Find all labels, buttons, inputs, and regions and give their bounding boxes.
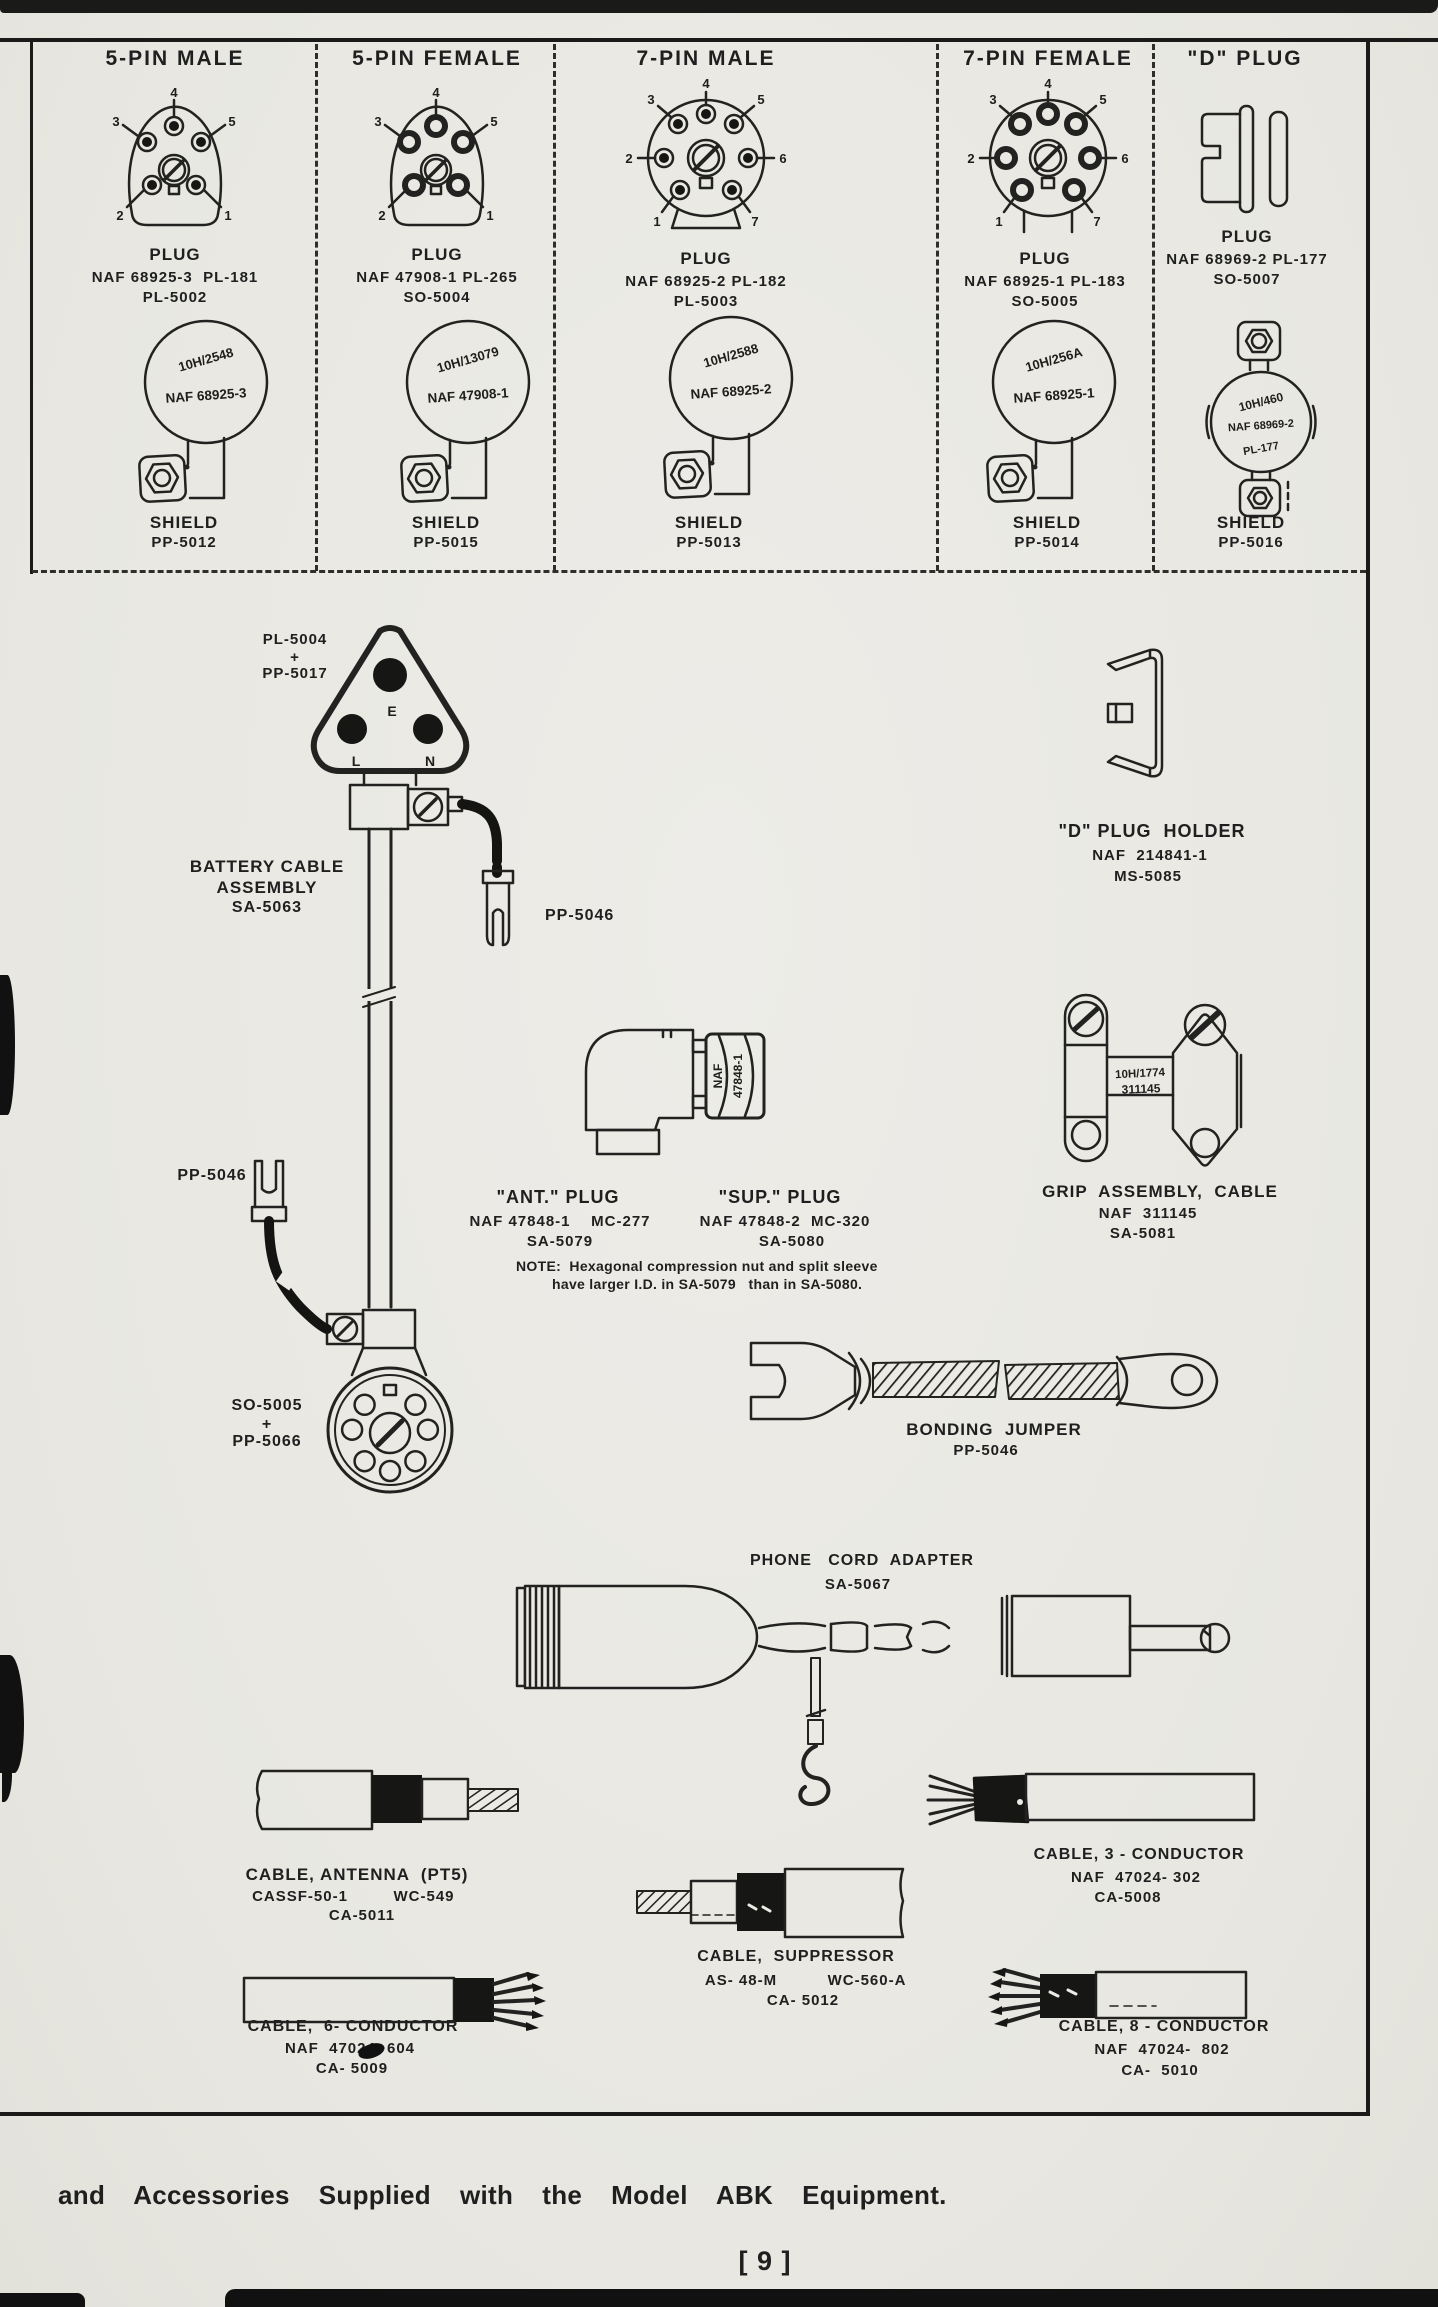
pin-number: 5 bbox=[490, 114, 497, 129]
pin-number: 1 bbox=[653, 214, 660, 229]
col-header-7pin-male: 7-PIN MALE bbox=[636, 48, 775, 70]
pin-number: 2 bbox=[378, 208, 385, 223]
pin-number: 4 bbox=[702, 76, 710, 91]
pin-number: 4 bbox=[1044, 76, 1052, 91]
bonding-jumper-drawing bbox=[745, 1335, 1225, 1430]
five-pin-male-connector-drawing: 4 3 5 2 1 bbox=[92, 80, 257, 240]
shield-stamp-1: 10H/460 bbox=[1237, 390, 1285, 415]
shield-stamp-2: NAF 68925-1 bbox=[1013, 385, 1095, 406]
shield-part: PP-5015 bbox=[413, 535, 478, 551]
shield-label: SHIELD bbox=[1013, 514, 1081, 532]
grip-assembly-drawing: 10H/1774 311145 bbox=[1055, 985, 1265, 1170]
plug-label: PLUG bbox=[1019, 250, 1070, 268]
battery-socket-plus: + bbox=[262, 1417, 272, 1434]
cable-suppressor-part-b: WC-560-A bbox=[828, 1973, 907, 1989]
pin-number: 7 bbox=[751, 214, 758, 229]
shield-stamp-2: NAF 68925-2 bbox=[690, 381, 772, 402]
sup-plug-title: "SUP." PLUG bbox=[719, 1188, 842, 1207]
figure-border-top bbox=[0, 38, 1438, 42]
battery-assembly-name-1: BATTERY CABLE bbox=[190, 858, 344, 876]
battery-assembly-part: SA-5063 bbox=[232, 900, 302, 917]
cable-6-part-2: CA- 5009 bbox=[316, 2061, 388, 2077]
shield-label: SHIELD bbox=[150, 514, 218, 532]
shield-drawing-pp5016: 10H/460 NAF 68969-2 PL-177 bbox=[1198, 318, 1328, 523]
col-header-d-plug: "D" PLUG bbox=[1187, 48, 1302, 70]
grip-stamp-1: 10H/1774 bbox=[1115, 1067, 1166, 1082]
plug-part-line2: SO-5005 bbox=[1011, 294, 1078, 310]
shield-drawing-pp5013: 10H/2588 NAF 68925-2 bbox=[645, 308, 810, 523]
seven-pin-male-connector-drawing: 4 3 5 2 6 1 7 bbox=[616, 74, 796, 246]
plug-label: PLUG bbox=[680, 250, 731, 268]
cable-3-part-2: CA-5008 bbox=[1094, 1890, 1161, 1906]
ant-plug-part-2: SA-5079 bbox=[527, 1234, 593, 1250]
figure-border-right bbox=[1366, 38, 1370, 2115]
cable-antenna-part-a: CASSF-50-1 bbox=[252, 1889, 348, 1905]
shield-label: SHIELD bbox=[675, 514, 743, 532]
elbow-plug-drawing: NAF 47848-1 bbox=[565, 1010, 795, 1160]
shield-drawing-pp5015: 10H/13079 NAF 47908-1 bbox=[382, 312, 547, 527]
scan-smudge-1 bbox=[0, 975, 15, 1115]
battery-plug-plus: + bbox=[290, 650, 300, 666]
shield-part: PP-5016 bbox=[1218, 535, 1283, 551]
d-plug-holder-drawing bbox=[1100, 640, 1230, 790]
battery-socket-part-2: PP-5066 bbox=[232, 1434, 301, 1451]
plug-part-line1: NAF 68925-1 PL-183 bbox=[964, 274, 1125, 290]
pin-number: 2 bbox=[967, 151, 974, 166]
figure-border-bottom bbox=[0, 2112, 1370, 2116]
pin-number: 3 bbox=[112, 114, 119, 129]
battery-pin-letter-e: E bbox=[387, 703, 396, 719]
page-number: [ 9 ] bbox=[738, 2247, 791, 2275]
phone-cord-adapter-part: SA-5067 bbox=[825, 1577, 891, 1593]
plug-part-line1: NAF 68969-2 PL-177 bbox=[1166, 252, 1327, 268]
sup-plug-part-2: SA-5080 bbox=[759, 1234, 825, 1250]
pin-number: 5 bbox=[228, 114, 235, 129]
table-divider-4 bbox=[1152, 44, 1155, 571]
table-divider-1 bbox=[315, 44, 318, 571]
grip-assembly-title: GRIP ASSEMBLY, CABLE bbox=[1042, 1183, 1278, 1201]
scan-edge-top bbox=[0, 0, 1438, 13]
cable-6-title: CABLE, 6- CONDUCTOR bbox=[248, 2019, 459, 2036]
bonding-jumper-part: PP-5046 bbox=[953, 1443, 1018, 1459]
plug-label: PLUG bbox=[149, 246, 200, 264]
scan-edge-bottom-left bbox=[0, 2293, 85, 2307]
plug-part-line1: NAF 68925-3 PL-181 bbox=[92, 270, 259, 286]
cable-suppressor-part-a: AS- 48-M bbox=[705, 1973, 777, 1989]
cable-8-part-1: NAF 47024- 802 bbox=[1094, 2042, 1229, 2058]
phone-cord-adapter-title: PHONE CORD ADAPTER bbox=[750, 1553, 974, 1570]
shield-stamp-1: 10H/2588 bbox=[702, 341, 760, 371]
cable-antenna-drawing bbox=[250, 1765, 525, 1835]
shield-stamp-2: NAF 68969-2 bbox=[1228, 418, 1295, 435]
cable-6-part-1: NAF 47024- 604 bbox=[285, 2041, 415, 2057]
shield-label: SHIELD bbox=[412, 514, 480, 532]
pin-number: 1 bbox=[995, 214, 1002, 229]
pin-number: 5 bbox=[1099, 92, 1106, 107]
elbow-nut-stamp-1: NAF bbox=[711, 1064, 725, 1089]
plug-label: PLUG bbox=[1221, 228, 1272, 246]
plug-part-line2: SO-5007 bbox=[1213, 272, 1280, 288]
shield-stamp-1: 10H/2548 bbox=[177, 345, 235, 375]
cable-antenna-title: CABLE, ANTENNA (PT5) bbox=[246, 1866, 469, 1884]
pin-number: 3 bbox=[989, 92, 996, 107]
pin-number: 2 bbox=[625, 151, 632, 166]
col-header-5pin-male: 5-PIN MALE bbox=[105, 48, 244, 70]
pin-number: 1 bbox=[486, 208, 493, 223]
shield-stamp-2: NAF 47908-1 bbox=[427, 385, 509, 406]
scan-smudge-2 bbox=[0, 1655, 24, 1773]
cable-suppressor-drawing bbox=[635, 1865, 910, 1940]
scan-edge-bottom bbox=[225, 2289, 1438, 2307]
battery-pin-letter-n: N bbox=[425, 753, 435, 769]
table-divider-2 bbox=[553, 44, 556, 571]
table-divider-3 bbox=[936, 44, 939, 571]
battery-plug-part-1: PL-5004 bbox=[263, 632, 328, 648]
pin-number: 1 bbox=[224, 208, 231, 223]
d-plug-connector-drawing bbox=[1192, 100, 1317, 218]
note-line-1: NOTE: Hexagonal compression nut and spli… bbox=[516, 1259, 878, 1274]
table-border-bottom bbox=[32, 570, 1366, 573]
col-header-5pin-female: 5-PIN FEMALE bbox=[352, 48, 522, 70]
battery-pin-letter-l: L bbox=[352, 753, 361, 769]
cable-antenna-part-b: WC-549 bbox=[393, 1889, 454, 1905]
table-border-left bbox=[30, 40, 33, 574]
five-pin-female-connector-drawing: 4 3 5 2 1 bbox=[354, 80, 519, 240]
cable-8-title: CABLE, 8 - CONDUCTOR bbox=[1059, 2019, 1270, 2036]
pin-number: 4 bbox=[432, 85, 440, 100]
d-plug-holder-part-1: NAF 214841-1 bbox=[1092, 848, 1208, 864]
d-plug-holder-title: "D" PLUG HOLDER bbox=[1058, 822, 1245, 841]
shield-part: PP-5012 bbox=[151, 535, 216, 551]
cable-suppressor-title: CABLE, SUPPRESSOR bbox=[697, 1949, 895, 1966]
ant-plug-title: "ANT." PLUG bbox=[496, 1188, 619, 1207]
plug-part-line1: NAF 68925-2 PL-182 bbox=[625, 274, 786, 290]
bonding-jumper-title: BONDING JUMPER bbox=[906, 1421, 1082, 1439]
pin-number: 3 bbox=[647, 92, 654, 107]
shield-label: SHIELD bbox=[1217, 514, 1285, 532]
shield-stamp-2: NAF 68925-3 bbox=[165, 385, 247, 406]
battery-assembly-name-2: ASSEMBLY bbox=[217, 879, 318, 897]
ant-plug-part-1: NAF 47848-1 MC-277 bbox=[469, 1214, 650, 1230]
grip-assembly-part-2: SA-5081 bbox=[1110, 1226, 1176, 1242]
manual-page: 5-PIN MALE 5-PIN FEMALE 7-PIN MALE 7-PIN… bbox=[0, 0, 1438, 2307]
cable-3-title: CABLE, 3 - CONDUCTOR bbox=[1034, 1847, 1245, 1864]
plug-part-line2: PL-5002 bbox=[143, 290, 208, 306]
elbow-nut-stamp-2: 47848-1 bbox=[731, 1054, 745, 1098]
battery-plug-part-2: PP-5017 bbox=[262, 666, 327, 682]
figure-caption: and Accessories Supplied with the Model … bbox=[58, 2182, 947, 2209]
pin-number: 6 bbox=[779, 151, 786, 166]
pin-number: 3 bbox=[374, 114, 381, 129]
note-line-2: have larger I.D. in SA-5079 than in SA-5… bbox=[552, 1277, 862, 1292]
pin-number: 2 bbox=[116, 208, 123, 223]
battery-socket-part-1: SO-5005 bbox=[231, 1398, 302, 1415]
cable-antenna-part-2: CA-5011 bbox=[329, 1908, 395, 1924]
pin-number: 6 bbox=[1121, 151, 1128, 166]
grip-stamp-2: 311145 bbox=[1121, 1081, 1161, 1096]
plug-part-line1: NAF 47908-1 PL-265 bbox=[356, 270, 517, 286]
grip-assembly-part-1: NAF 311145 bbox=[1099, 1206, 1198, 1222]
plug-part-line2: SO-5004 bbox=[403, 290, 470, 306]
fork-terminal-part-left: PP-5046 bbox=[177, 1168, 246, 1185]
shield-part: PP-5013 bbox=[676, 535, 741, 551]
cable-suppressor-part-2: CA- 5012 bbox=[767, 1993, 839, 2009]
shield-part: PP-5014 bbox=[1014, 535, 1079, 551]
col-header-7pin-female: 7-PIN FEMALE bbox=[963, 48, 1133, 70]
scan-smudge-2-tail bbox=[2, 1768, 12, 1802]
fork-terminal-part-right: PP-5046 bbox=[545, 908, 614, 925]
pin-number: 7 bbox=[1093, 214, 1100, 229]
cable-3-conductor-drawing bbox=[928, 1770, 1258, 1830]
pin-number: 5 bbox=[757, 92, 764, 107]
cable-8-part-2: CA- 5010 bbox=[1121, 2063, 1198, 2079]
shield-drawing-pp5012: 10H/2548 NAF 68925-3 bbox=[120, 312, 285, 527]
shield-stamp-1: 10H/256A bbox=[1024, 344, 1085, 375]
shield-stamp-3: PL-177 bbox=[1242, 440, 1280, 458]
cable-3-part-1: NAF 47024- 302 bbox=[1071, 1870, 1201, 1886]
shield-stamp-1: 10H/13079 bbox=[435, 344, 500, 376]
seven-pin-female-connector-drawing: 4 3 5 2 6 1 7 bbox=[958, 74, 1138, 246]
shield-drawing-pp5014: 10H/256A NAF 68925-1 bbox=[968, 312, 1133, 527]
pin-number: 4 bbox=[170, 85, 178, 100]
plug-label: PLUG bbox=[411, 246, 462, 264]
d-plug-holder-part-2: MS-5085 bbox=[1114, 869, 1182, 885]
sup-plug-part-1: NAF 47848-2 MC-320 bbox=[700, 1214, 871, 1230]
